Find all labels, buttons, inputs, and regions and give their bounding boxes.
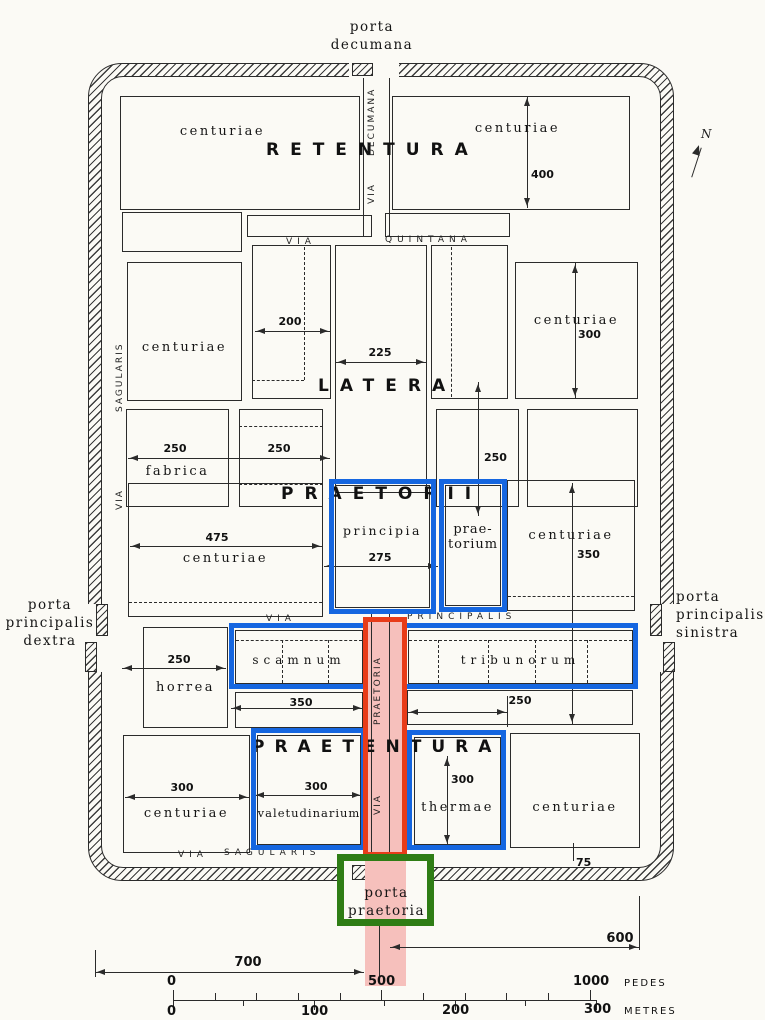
dashed-divider [129,602,322,603]
via-quintana-word-via: VIA [286,237,316,247]
block-latera-centuriae-left [127,262,242,401]
dim-75-label: 75 [576,856,591,869]
porta-principalis-sinistra-label: porta principalis sinistra [676,588,765,642]
dim-700-tick [95,950,96,977]
scalebar-pedes-1000: 1000 [573,974,609,989]
via-sagularis-left-word-via: VIA [115,480,125,520]
porta-sinistra-stub-upper [650,604,662,636]
porta-dextra-line1: porta [28,597,72,613]
label-centuriae-475: centuriae [128,551,323,566]
block-praetentura-centuriae-right [510,733,640,848]
scalebar-pedes-tick [298,993,299,1000]
dim-475-label: 475 [197,531,237,544]
via-quintana-word-name: QUINTANA [385,235,472,245]
dim-250-right-label: 250 [484,451,507,464]
dim-300-centuriae-line [125,797,249,798]
porta-dextra-line3: dextra [23,633,76,649]
scalebar-pedes-tick [548,993,549,1000]
dashed-divider [252,380,304,381]
scalebar-metres-0: 0 [167,1004,176,1019]
dim-400-label: 400 [531,168,554,181]
block-latera-225 [335,245,427,493]
porta-sinistra-line3: sinistra [676,625,739,641]
block-praetentura-centuriae-left [123,735,250,853]
section-latera: LATERA [318,376,456,396]
block-retentura-small-mid [247,215,372,237]
label-centuriae-350: centuriae [507,528,635,543]
dim-300-latera-label: 300 [578,328,601,341]
highlight-valetudinarium [251,728,366,850]
dashed-divider [508,596,634,597]
dim-250-tribunorum-label: 250 [500,694,540,707]
via-sagularis-bottom-word-via: VIA [178,850,208,860]
label-horrea: horrea [143,680,228,695]
highlight-porta-praetoria [337,854,434,926]
label-centuriae-retentura-right: centuriae [455,121,580,136]
highlight-thermae [407,730,506,850]
dashed-divider [304,247,305,380]
label-centuriae-praetentura-left: centuriae [123,806,250,821]
dim-250-horrea-line [122,668,226,669]
scalebar-pedes-tick [256,993,257,1000]
label-centuriae-praetentura-right: centuriae [510,800,640,815]
dim-200-label: 200 [270,315,310,328]
block-horrea [143,627,228,728]
porta-decumana-gate-stub [352,63,373,76]
via-decumana-word-via: VIA [367,176,377,212]
dim-700-line [95,972,364,973]
scalebar-pedes-tick [590,990,591,1000]
dim-250-fabrica-label: 250 [155,442,195,455]
dim-200-line [255,331,330,332]
block-retentura-small-right [385,213,510,237]
porta-sinistra-line2: principalis [676,607,765,623]
dim-300-latera-line [575,263,576,398]
dim-250-tribunorum-line [408,712,507,713]
scalebar-pedes-tick [173,990,174,1000]
dim-250-horrea-label: 250 [159,653,199,666]
label-centuriae-retentura-left: centuriae [160,124,285,139]
dim-400-line [527,96,528,208]
scalebar-metres-100: 100 [301,1004,328,1019]
scalebar-pedes-tick [381,990,382,1000]
scalebar-pedes-tick [215,993,216,1000]
scalebar-metres-300: 300 [584,1002,611,1017]
scalebar-pedes-tick [423,993,424,1000]
dim-225-label: 225 [360,346,400,359]
label-fabrica: fabrica [126,464,229,479]
label-centuriae-latera-left: centuriae [127,340,242,355]
dim-600-line [390,947,639,948]
scalebar-metres-200: 200 [442,1003,469,1018]
porta-principalis-dextra-label: porta principalis dextra [2,596,98,650]
scalebar-pedes-unit: PEDES [624,978,667,989]
north-label: N [701,127,712,141]
dim-75-tick [573,843,574,861]
dim-225-line [336,362,426,363]
scalebar-pedes-tick [506,993,507,1000]
scalebar-metres-tick [525,1000,526,1006]
porta-decumana-label: porta decumana [312,18,432,54]
roman-fort-plan: 400 200 225 300 250 250 250 475 275 350 … [0,0,765,1020]
porta-dextra-line2: principalis [6,615,95,631]
north-arrow-head [692,140,704,156]
label-centuriae-latera-right: centuriae [515,313,638,328]
block-centuriae-350 [507,480,635,611]
highlight-praetorium [439,479,507,612]
porta-sinistra-stub-lower [663,642,675,672]
dim-475-line [130,546,322,547]
highlight-scamnum [229,623,368,689]
dashed-divider [451,247,452,397]
dim-250-mid-label: 250 [259,442,299,455]
highlight-tribunorum [402,623,638,689]
via-sagularis-left-word-name: SAGULARIS [115,320,125,434]
scalebar-metres-unit: METRES [624,1006,677,1017]
dim-300-centuriae-label: 300 [162,781,202,794]
via-decumana-word-name: DECUMANA [367,76,377,168]
scalebar-baseline [173,1000,597,1001]
dim-350-label: 350 [577,548,600,561]
dim-250-250-line [128,458,330,459]
porta-decumana-line2: decumana [331,37,413,53]
porta-sinistra-line1: porta [676,589,720,605]
scalebar-metres-tick [384,1000,385,1006]
scalebar-pedes-tick [465,993,466,1000]
dim-600-label: 600 [600,931,640,946]
porta-decumana-line1: porta [350,19,394,35]
highlight-via-praetoria [363,617,407,857]
highlight-principia [329,479,436,614]
scalebar-pedes-tick [340,993,341,1000]
scalebar-pedes-0: 0 [167,974,176,989]
scalebar-pedes-500: 500 [368,974,395,989]
dim-350-scamnum-label: 350 [281,696,321,709]
dim-700-label: 700 [228,955,268,970]
via-praetoria-axis [379,924,380,980]
block-retentura-small-left [122,212,242,252]
scalebar-metres-tick [243,1000,244,1006]
block-latera-centuriae-right [515,262,638,399]
dashed-divider [239,426,323,427]
